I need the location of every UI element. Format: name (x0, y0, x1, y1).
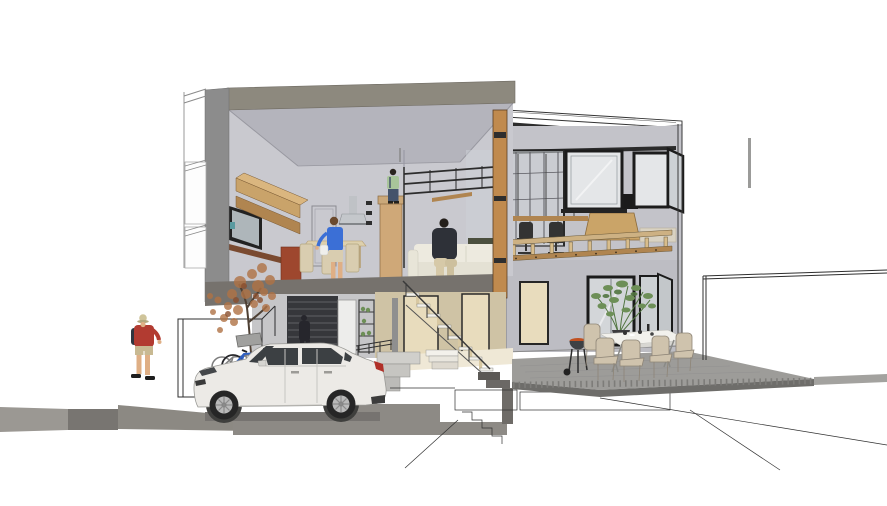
white-door (338, 300, 356, 354)
upper-windows (561, 149, 683, 213)
hanging-desk (510, 216, 588, 221)
right-wing (506, 110, 683, 352)
door-handle (291, 371, 299, 374)
mezzanine-column (380, 203, 402, 278)
wall-edge (392, 298, 398, 354)
door-handle (324, 371, 332, 374)
section-render (0, 0, 887, 506)
side-mirror (258, 360, 266, 366)
open-casement (668, 149, 683, 212)
left-wall-cut (205, 88, 229, 302)
rear-wheel (327, 390, 356, 419)
first-floor-interior (229, 103, 513, 286)
window-handle (230, 222, 235, 229)
timber-column-cut (493, 110, 507, 298)
beige-door (520, 282, 548, 344)
front-wheel (210, 391, 239, 420)
red-cabinet (281, 247, 301, 284)
gray-post (748, 138, 751, 188)
site-pillar (502, 388, 513, 424)
